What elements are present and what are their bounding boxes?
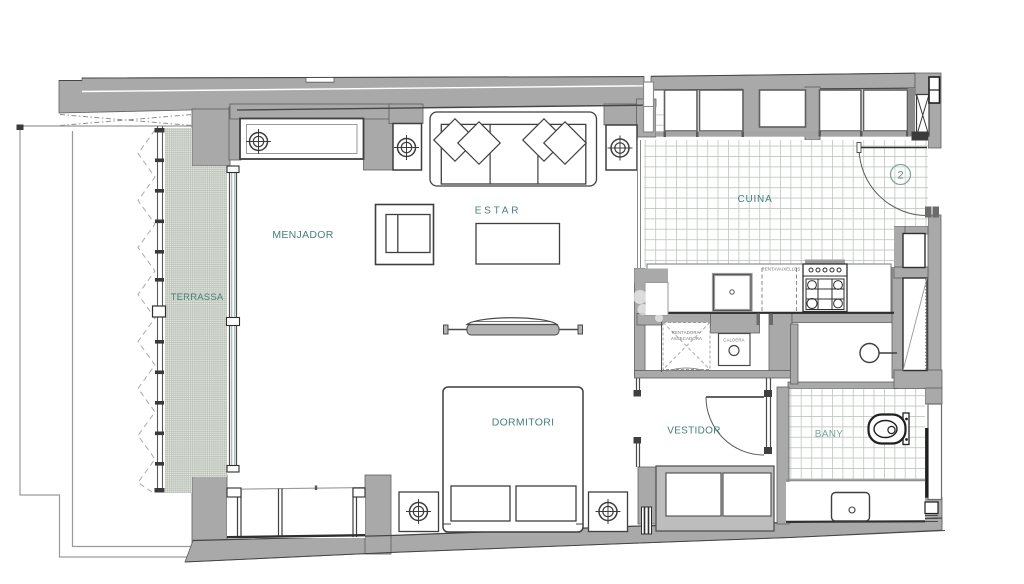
svg-text:ESTAR: ESTAR xyxy=(475,206,522,217)
svg-text:BANY: BANY xyxy=(815,429,843,440)
svg-text:RENTAVAIXELLES: RENTAVAIXELLES xyxy=(762,267,801,272)
svg-text:ASSECADORA: ASSECADORA xyxy=(671,336,702,341)
svg-text:DORMITORI: DORMITORI xyxy=(492,417,555,429)
svg-text:VESTIDOR: VESTIDOR xyxy=(667,426,721,437)
svg-text:CUINA: CUINA xyxy=(737,194,772,205)
svg-text:RENTADORA-: RENTADORA- xyxy=(672,330,702,335)
svg-text:TERRASSA: TERRASSA xyxy=(171,292,224,303)
svg-text:2: 2 xyxy=(897,170,903,182)
svg-text:MENJADOR: MENJADOR xyxy=(272,229,333,241)
svg-text:CALDERA: CALDERA xyxy=(723,338,744,343)
